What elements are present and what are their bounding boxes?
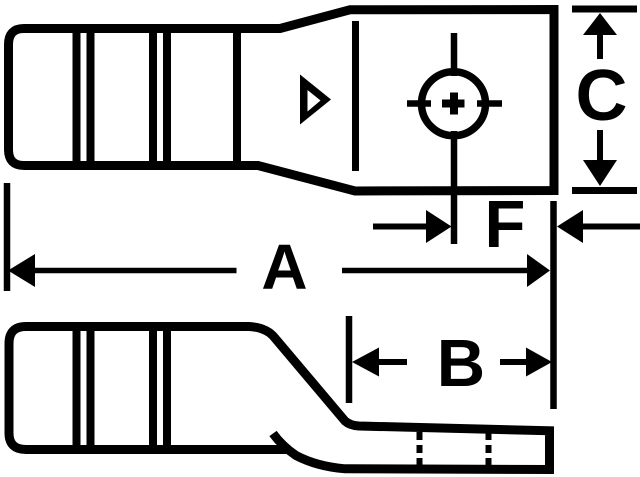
svg-text:B: B [437, 326, 485, 401]
svg-text:A: A [261, 231, 307, 303]
svg-text:F: F [485, 187, 526, 262]
svg-text:C: C [576, 56, 628, 136]
